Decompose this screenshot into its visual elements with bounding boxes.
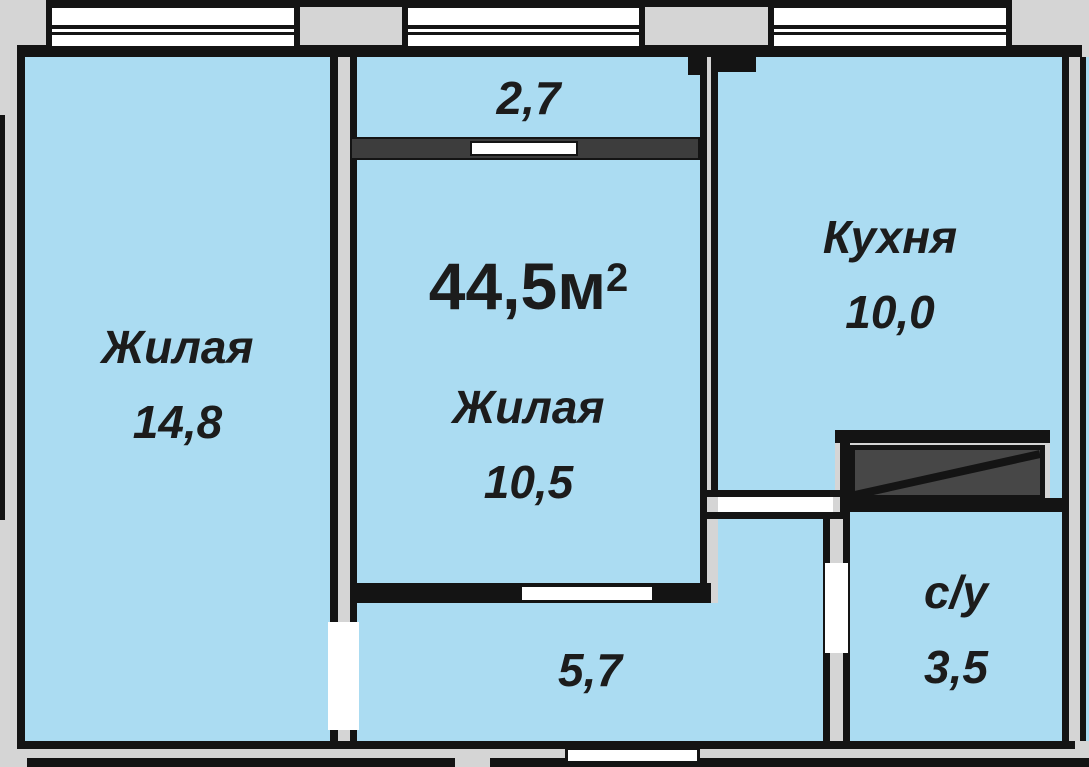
window-symbol-balcony [402, 2, 645, 52]
wall-right-outer [1062, 45, 1069, 749]
wall-kitchen-door-top [700, 490, 840, 497]
wall-kitchen-over-vent [835, 430, 1050, 443]
window-glazing-line [408, 32, 639, 35]
label-hallway-area: 5,7 [357, 642, 823, 698]
label-living1-area: 14,8 [25, 394, 330, 450]
room-living-2 [357, 160, 700, 583]
wall-left-outer [17, 45, 25, 749]
floor-plan: Жилая 14,8 2,7 44,5м2 Жилая 10,5 Кухня 1… [0, 0, 1089, 767]
window-glazing-line [52, 25, 294, 29]
window-glazing-line [774, 32, 1006, 35]
label-total-area: 44,5м2 [357, 242, 700, 322]
wall-bottom [17, 741, 1075, 749]
room-hallway-arm [718, 519, 823, 603]
vent-shaft [850, 445, 1045, 500]
balcony-door-window [470, 141, 578, 156]
label-bathroom-area: 3,5 [850, 639, 1062, 695]
total-area-superscript: 2 [606, 256, 628, 300]
window-glazing-line [774, 25, 1006, 29]
window-symbol-kitchen [768, 2, 1012, 52]
label-balcony-area: 2,7 [357, 70, 700, 126]
door-opening-living2-hallway [522, 587, 652, 600]
entrance-door [565, 747, 700, 764]
wall-kitchen-notch [718, 57, 756, 72]
label-bathroom-name: с/у [850, 564, 1062, 620]
room-kitchen-lower-left [718, 430, 835, 490]
adjacent-wall-left [0, 115, 5, 520]
total-area-value: 44,5м [429, 249, 606, 323]
label-kitchen-area: 10,0 [718, 284, 1062, 340]
window-glazing-line [408, 25, 639, 29]
vent-shaft-hatch [855, 450, 1040, 495]
label-kitchen-name: Кухня [718, 209, 1062, 265]
door-opening-living1-hallway [328, 622, 359, 730]
label-living2-name: Жилая [357, 379, 700, 435]
wall-bathroom-top [843, 498, 1069, 512]
window-symbol-living1 [46, 2, 300, 52]
label-living2-area: 10,5 [357, 454, 700, 510]
label-living1-name: Жилая [25, 319, 330, 375]
adjacent-wall-bottom-a [27, 758, 455, 767]
door-opening-kitchen-hallway [718, 497, 833, 512]
room-bathroom [850, 512, 1062, 741]
wall-kitchen-door-bottom [700, 512, 850, 519]
room-kitchen-lower-right [1050, 430, 1062, 498]
door-opening-bathroom-hallway [825, 563, 848, 653]
wall-middle-divider-a [700, 57, 707, 603]
wall-middle-divider-b [711, 45, 718, 497]
window-glazing-line [52, 32, 294, 35]
